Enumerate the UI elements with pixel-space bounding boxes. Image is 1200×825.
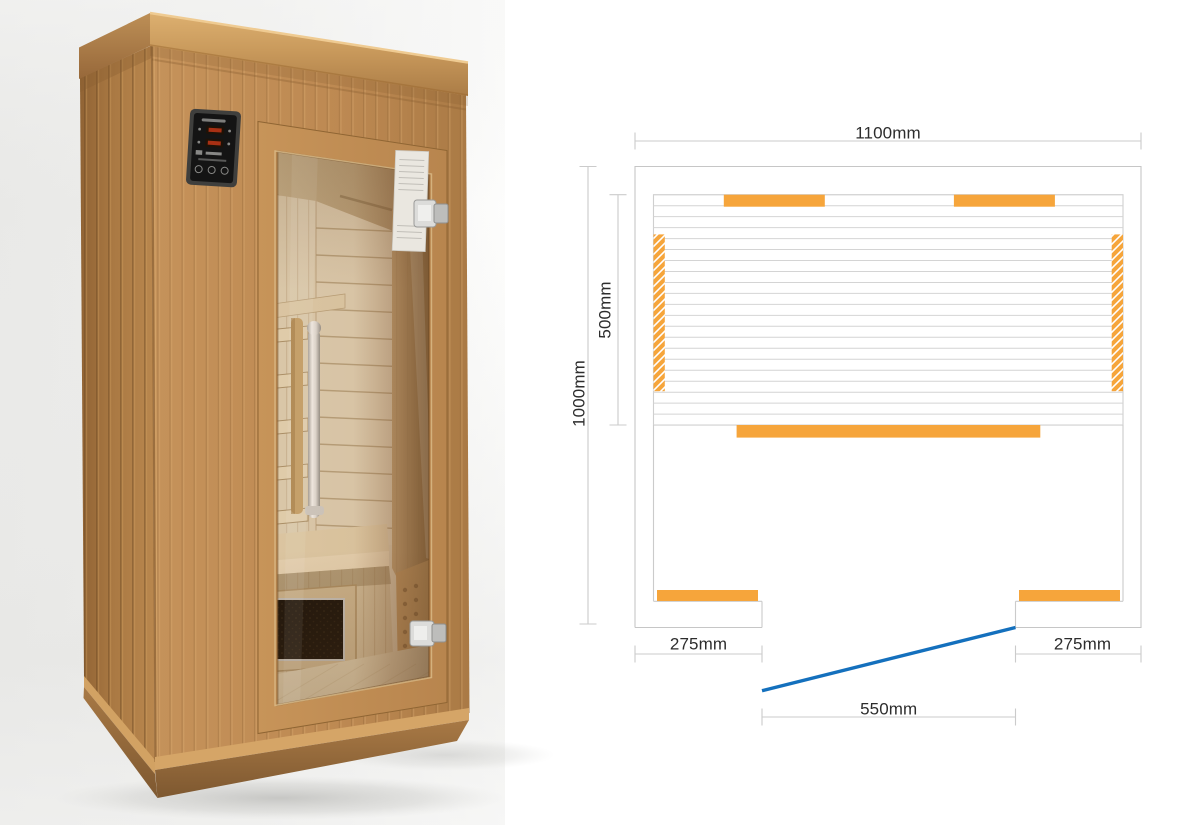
svg-text:275mm: 275mm [1054, 635, 1111, 654]
svg-text:1100mm: 1100mm [855, 124, 920, 143]
svg-text:550mm: 550mm [860, 700, 917, 719]
svg-text:1000mm: 1000mm [570, 360, 589, 427]
svg-text:275mm: 275mm [670, 635, 727, 654]
svg-text:500mm: 500mm [596, 281, 615, 338]
